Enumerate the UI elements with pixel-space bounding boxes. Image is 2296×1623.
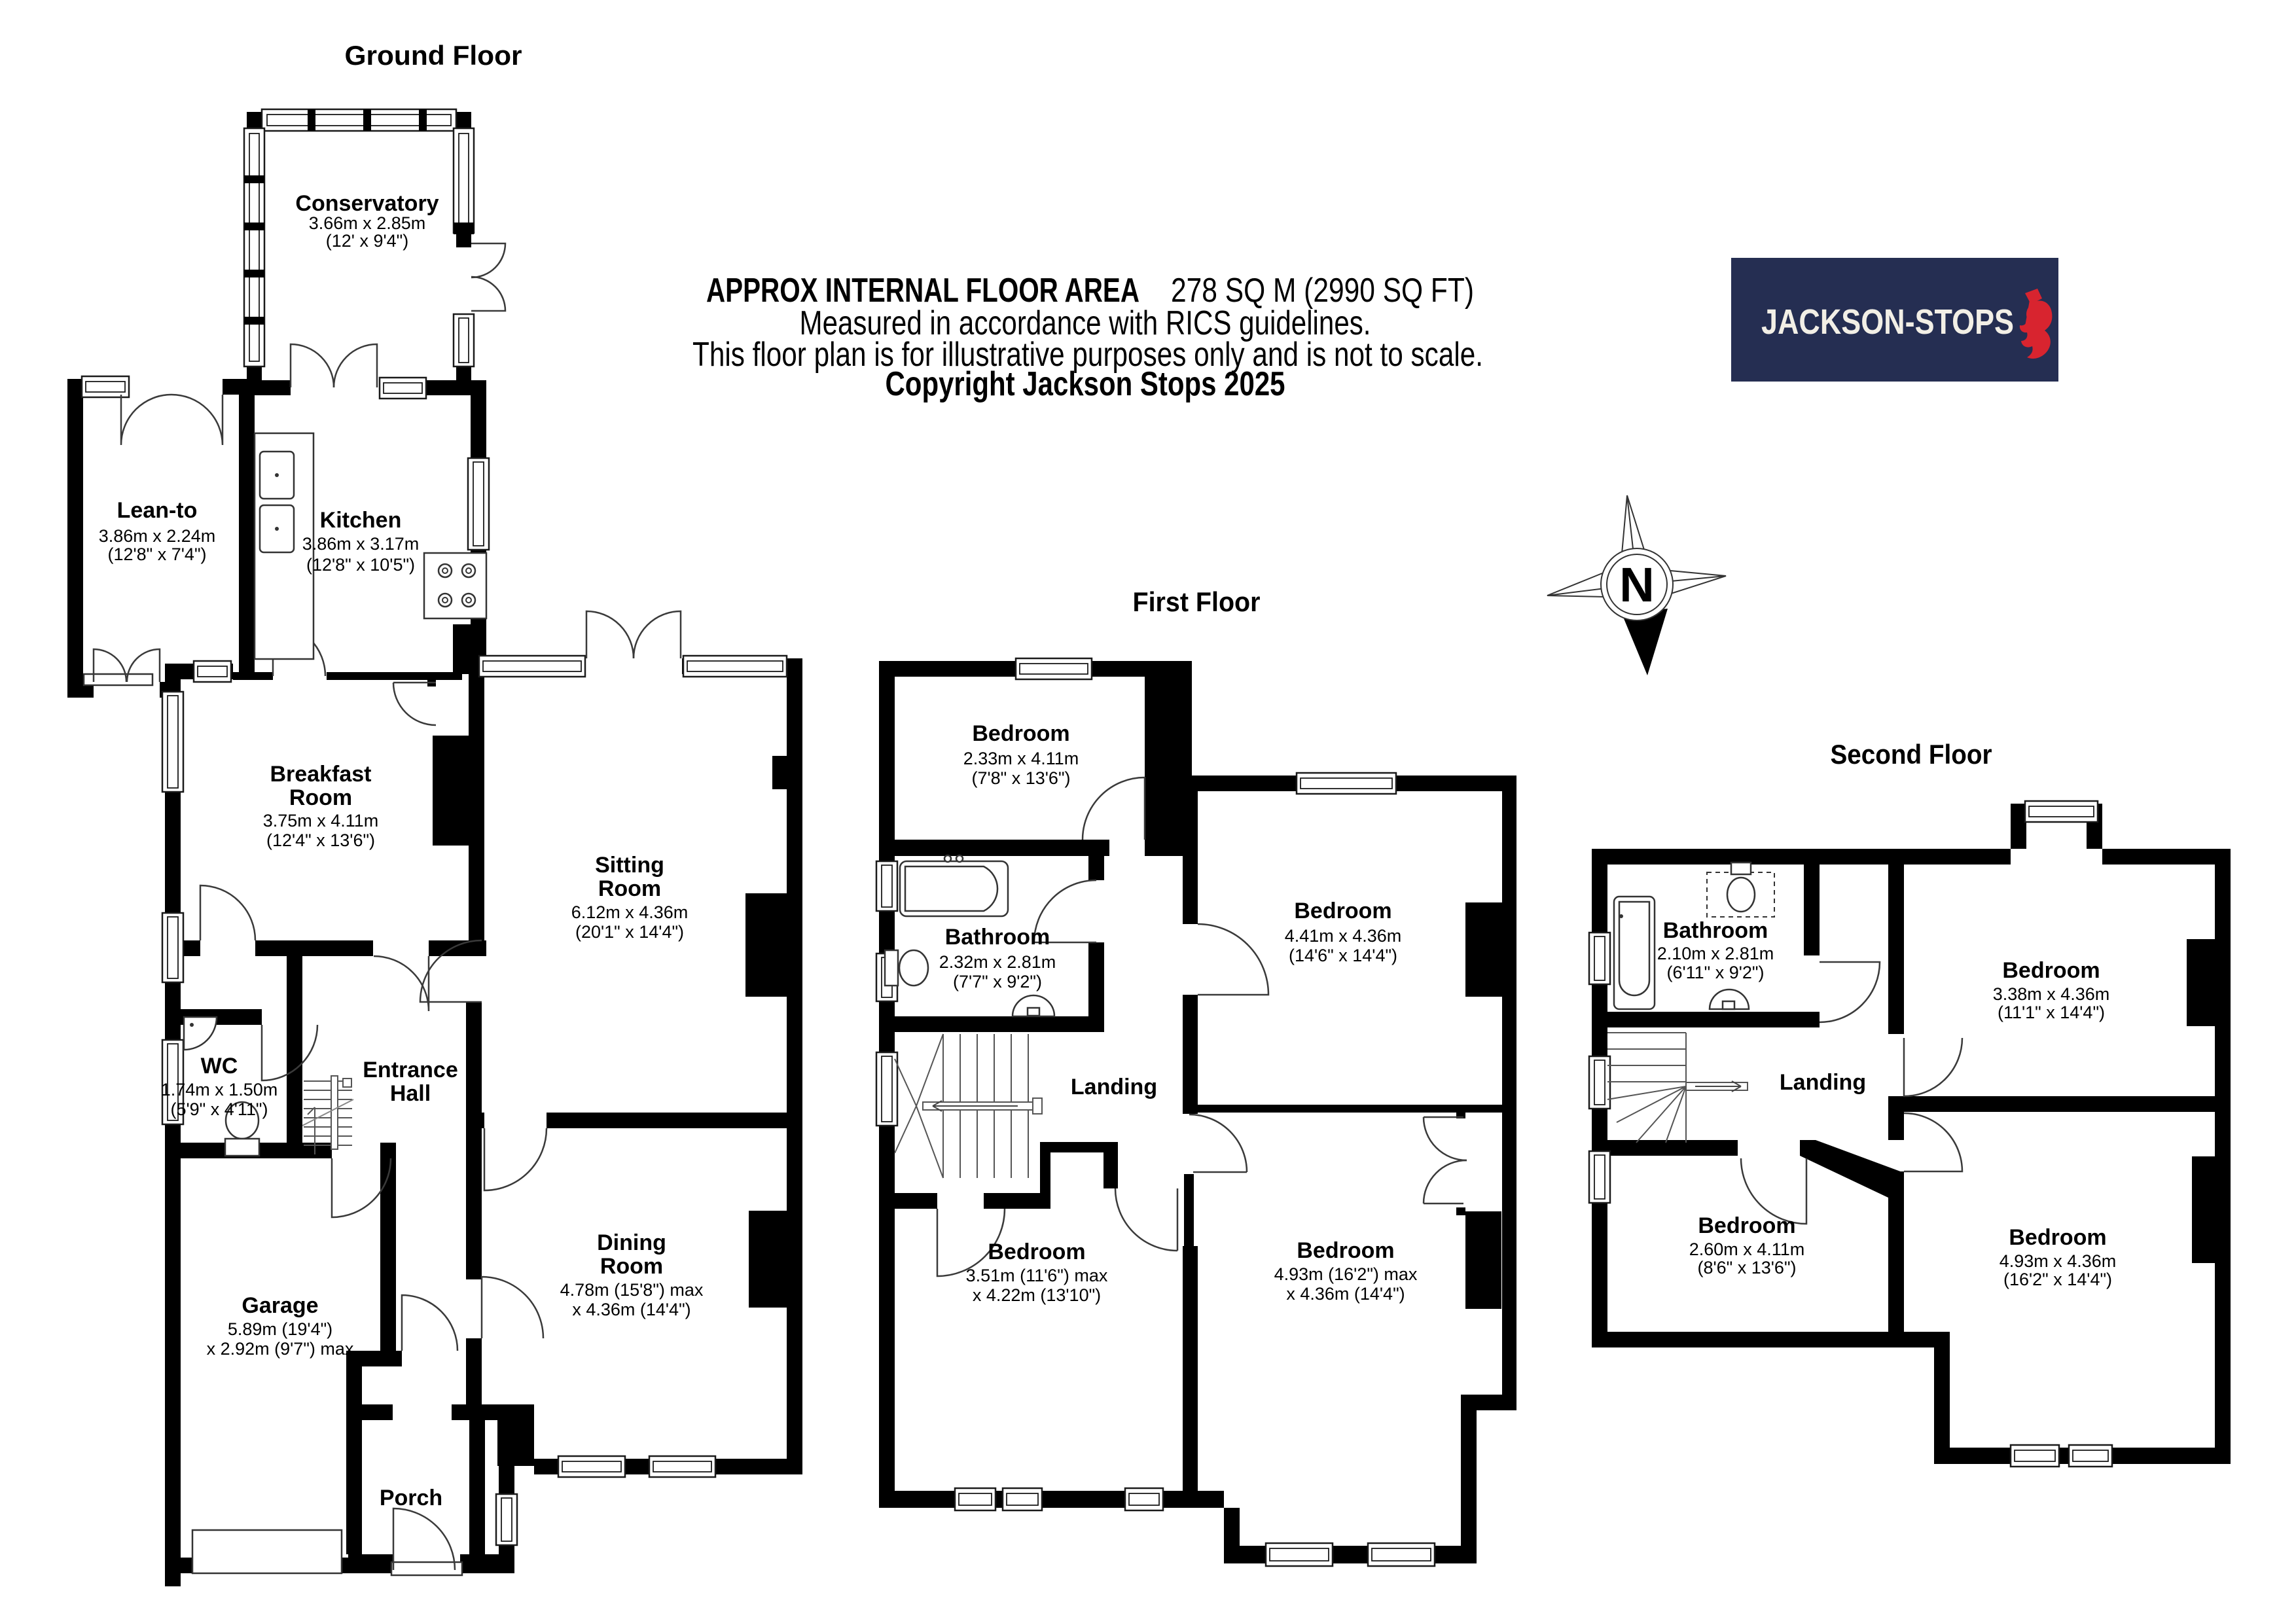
svg-text:(12'8" x 7'4"): (12'8" x 7'4") xyxy=(107,544,206,564)
svg-text:Bedroom: Bedroom xyxy=(1294,899,1391,923)
svg-text:Lean-to: Lean-to xyxy=(117,498,198,523)
svg-text:Kitchen: Kitchen xyxy=(320,508,402,533)
svg-text:x 2.92m (9'7") max: x 2.92m (9'7") max xyxy=(207,1339,354,1359)
svg-text:(16'2" x 14'4"): (16'2" x 14'4") xyxy=(2003,1270,2112,1289)
svg-text:3.66m x 2.85m: 3.66m x 2.85m xyxy=(309,213,426,233)
svg-text:Landing: Landing xyxy=(1780,1070,1866,1095)
svg-text:3.75m x 4.11m: 3.75m x 4.11m xyxy=(263,811,379,830)
svg-text:2.10m x 2.81m: 2.10m x 2.81m xyxy=(1657,944,1774,963)
svg-text:(7'8" x 13'6"): (7'8" x 13'6") xyxy=(971,768,1070,788)
svg-text:(20'1" x 14'4"): (20'1" x 14'4") xyxy=(575,922,684,942)
svg-text:WC: WC xyxy=(201,1054,238,1079)
svg-text:2.60m x 4.11m: 2.60m x 4.11m xyxy=(1689,1240,1805,1259)
svg-text:Bedroom: Bedroom xyxy=(2002,958,2100,983)
svg-text:x 4.22m (13'10"): x 4.22m (13'10") xyxy=(973,1285,1101,1305)
svg-text:x 4.36m (14'4"): x 4.36m (14'4") xyxy=(572,1300,691,1319)
svg-text:Bedroom: Bedroom xyxy=(972,721,1069,746)
svg-text:Room: Room xyxy=(289,785,352,810)
svg-text:Garage: Garage xyxy=(242,1293,318,1318)
svg-text:2.32m x 2.81m: 2.32m x 2.81m xyxy=(939,952,1056,972)
svg-text:Breakfast: Breakfast xyxy=(270,762,372,787)
svg-text:Room: Room xyxy=(598,876,661,901)
svg-text:(6'11" x 9'2"): (6'11" x 9'2") xyxy=(1666,963,1764,982)
svg-text:5.89m (19'4"): 5.89m (19'4") xyxy=(228,1319,332,1339)
svg-text:4.78m (15'8") max: 4.78m (15'8") max xyxy=(560,1280,704,1300)
svg-text:Bedroom: Bedroom xyxy=(2009,1225,2106,1250)
svg-text:(5'9" x 4'11"): (5'9" x 4'11") xyxy=(170,1099,268,1119)
svg-text:Copyright Jackson Stops 2025: Copyright Jackson Stops 2025 xyxy=(886,365,1285,403)
svg-text:(12'8" x 10'5"): (12'8" x 10'5") xyxy=(306,555,415,575)
svg-text:Hall: Hall xyxy=(390,1081,431,1106)
svg-text:JACKSON-STOPS: JACKSON-STOPS xyxy=(1761,302,2014,342)
svg-text:(11'1" x 14'4"): (11'1" x 14'4") xyxy=(1998,1003,2105,1022)
svg-text:N: N xyxy=(1619,558,1654,612)
svg-text:4.41m x 4.36m: 4.41m x 4.36m xyxy=(1285,926,1402,946)
svg-text:Room: Room xyxy=(600,1254,663,1279)
svg-text:4.93m (16'2") max: 4.93m (16'2") max xyxy=(1274,1264,1418,1284)
svg-text:4.93m x 4.36m: 4.93m x 4.36m xyxy=(2000,1251,2117,1271)
svg-text:Conservatory: Conservatory xyxy=(295,191,439,216)
svg-text:(12'4" x 13'6"): (12'4" x 13'6") xyxy=(266,830,375,850)
svg-text:Bedroom: Bedroom xyxy=(1698,1213,1795,1238)
svg-text:(8'6" x 13'6"): (8'6" x 13'6") xyxy=(1697,1258,1796,1277)
svg-text:(7'7" x 9'2"): (7'7" x 9'2") xyxy=(953,972,1042,991)
svg-text:Second Floor: Second Floor xyxy=(1831,739,1992,770)
svg-text:1.74m x 1.50m: 1.74m x 1.50m xyxy=(161,1080,278,1099)
svg-text:3.86m x 2.24m: 3.86m x 2.24m xyxy=(99,526,216,546)
svg-text:3.38m x 4.36m: 3.38m x 4.36m xyxy=(1993,984,2110,1004)
svg-text:Sitting: Sitting xyxy=(595,853,664,878)
svg-text:x 4.36m (14'4"): x 4.36m (14'4") xyxy=(1286,1284,1405,1304)
svg-text:3.51m (11'6") max: 3.51m (11'6") max xyxy=(966,1266,1108,1285)
svg-text:(12' x 9'4"): (12' x 9'4") xyxy=(326,231,408,251)
svg-text:Bathroom: Bathroom xyxy=(1663,918,1768,943)
svg-text:Landing: Landing xyxy=(1071,1075,1157,1099)
svg-text:(14'6" x 14'4"): (14'6" x 14'4") xyxy=(1289,946,1397,965)
svg-text:3.86m x 3.17m: 3.86m x 3.17m xyxy=(302,534,420,554)
svg-text:Porch: Porch xyxy=(380,1486,442,1510)
svg-text:2.33m x 4.11m: 2.33m x 4.11m xyxy=(963,749,1079,768)
svg-text:Ground Floor: Ground Floor xyxy=(345,40,522,71)
svg-text:Dining: Dining xyxy=(597,1230,666,1255)
svg-text:Bedroom: Bedroom xyxy=(988,1240,1085,1264)
svg-text:6.12m x 4.36m: 6.12m x 4.36m xyxy=(571,902,689,922)
svg-text:First Floor: First Floor xyxy=(1133,586,1261,617)
svg-text:Bedroom: Bedroom xyxy=(1297,1238,1394,1263)
svg-text:Entrance: Entrance xyxy=(363,1058,458,1082)
svg-text:Bathroom: Bathroom xyxy=(945,925,1050,950)
